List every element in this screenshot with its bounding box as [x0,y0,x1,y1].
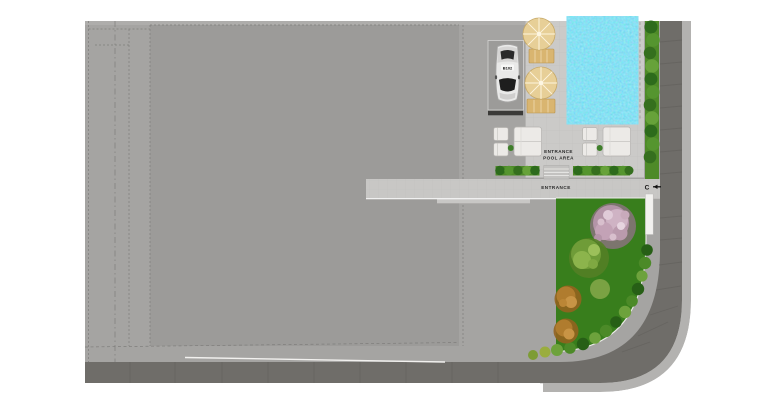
svg-text:POOL AREA: POOL AREA [543,156,574,161]
svg-text:C: C [645,185,650,192]
svg-text:B102: B102 [503,65,513,70]
svg-text:ENTRANCE: ENTRANCE [541,185,571,190]
svg-text:ENTRANCE: ENTRANCE [544,149,573,154]
